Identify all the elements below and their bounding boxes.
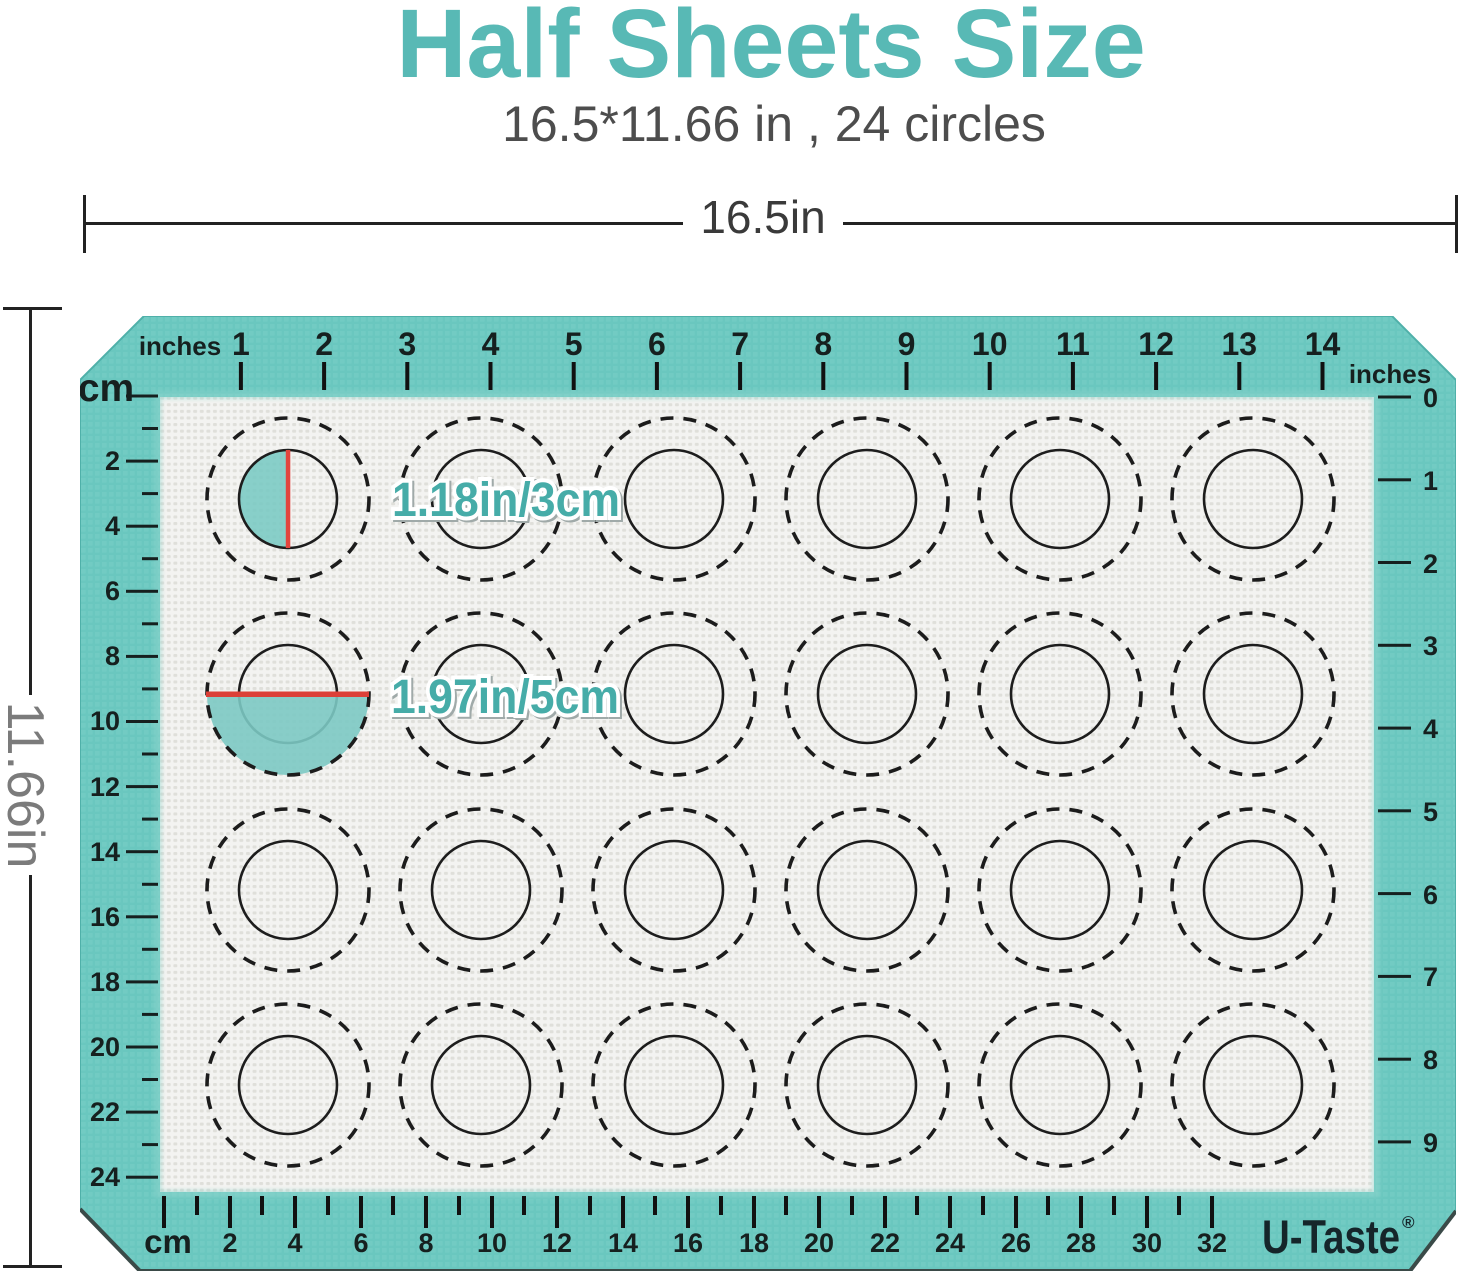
svg-text:28: 28 [1066, 1228, 1096, 1258]
svg-text:1: 1 [232, 326, 250, 362]
svg-text:7: 7 [1423, 962, 1438, 992]
svg-text:8: 8 [105, 641, 120, 671]
svg-text:6: 6 [648, 326, 666, 362]
svg-text:1.18in/3cm: 1.18in/3cm [392, 474, 620, 527]
svg-text:9: 9 [1423, 1128, 1438, 1158]
svg-text:10: 10 [972, 326, 1008, 362]
svg-text:16: 16 [673, 1228, 703, 1258]
svg-text:2: 2 [222, 1228, 237, 1258]
svg-text:7: 7 [731, 326, 749, 362]
svg-text:1: 1 [1423, 466, 1438, 496]
svg-text:4: 4 [1423, 714, 1438, 744]
svg-text:14: 14 [1305, 326, 1341, 362]
svg-text:inches: inches [1349, 359, 1431, 389]
svg-text:12: 12 [542, 1228, 572, 1258]
svg-text:5: 5 [1423, 797, 1438, 827]
svg-text:®: ® [1402, 1213, 1415, 1232]
svg-text:6: 6 [353, 1228, 368, 1258]
svg-text:20: 20 [90, 1032, 120, 1062]
svg-text:U-Taste: U-Taste [1262, 1210, 1400, 1263]
svg-text:22: 22 [870, 1228, 900, 1258]
svg-text:32: 32 [1197, 1228, 1227, 1258]
svg-text:6: 6 [1423, 880, 1438, 910]
svg-text:0: 0 [1423, 383, 1438, 413]
svg-text:26: 26 [1001, 1228, 1031, 1258]
svg-text:22: 22 [90, 1097, 120, 1127]
svg-text:6: 6 [105, 576, 120, 606]
svg-text:4: 4 [105, 511, 120, 541]
svg-text:14: 14 [90, 837, 120, 867]
svg-text:4: 4 [287, 1228, 302, 1258]
svg-text:2: 2 [315, 326, 333, 362]
svg-text:2: 2 [105, 446, 120, 476]
svg-text:10: 10 [90, 706, 120, 736]
svg-text:24: 24 [935, 1228, 965, 1258]
svg-text:2: 2 [1423, 549, 1438, 579]
svg-text:14: 14 [608, 1228, 638, 1258]
svg-text:4: 4 [482, 326, 500, 362]
svg-text:30: 30 [1132, 1228, 1162, 1258]
svg-text:5: 5 [565, 326, 583, 362]
svg-text:3: 3 [1423, 631, 1438, 661]
svg-text:13: 13 [1222, 326, 1258, 362]
svg-text:18: 18 [90, 967, 120, 997]
svg-text:16: 16 [90, 902, 120, 932]
svg-text:11: 11 [1056, 326, 1090, 362]
svg-text:cm: cm [80, 367, 134, 410]
svg-text:10: 10 [477, 1228, 507, 1258]
svg-text:inches: inches [139, 331, 221, 361]
svg-text:cm: cm [144, 1223, 192, 1260]
svg-text:8: 8 [814, 326, 832, 362]
svg-text:12: 12 [90, 772, 120, 802]
svg-text:20: 20 [804, 1228, 834, 1258]
svg-text:9: 9 [898, 326, 916, 362]
svg-text:12: 12 [1138, 326, 1174, 362]
svg-text:3: 3 [398, 326, 416, 362]
svg-text:18: 18 [739, 1228, 769, 1258]
svg-text:1.97in/5cm: 1.97in/5cm [391, 671, 619, 724]
svg-text:24: 24 [90, 1162, 120, 1192]
svg-text:8: 8 [418, 1228, 433, 1258]
svg-text:8: 8 [1423, 1045, 1438, 1075]
